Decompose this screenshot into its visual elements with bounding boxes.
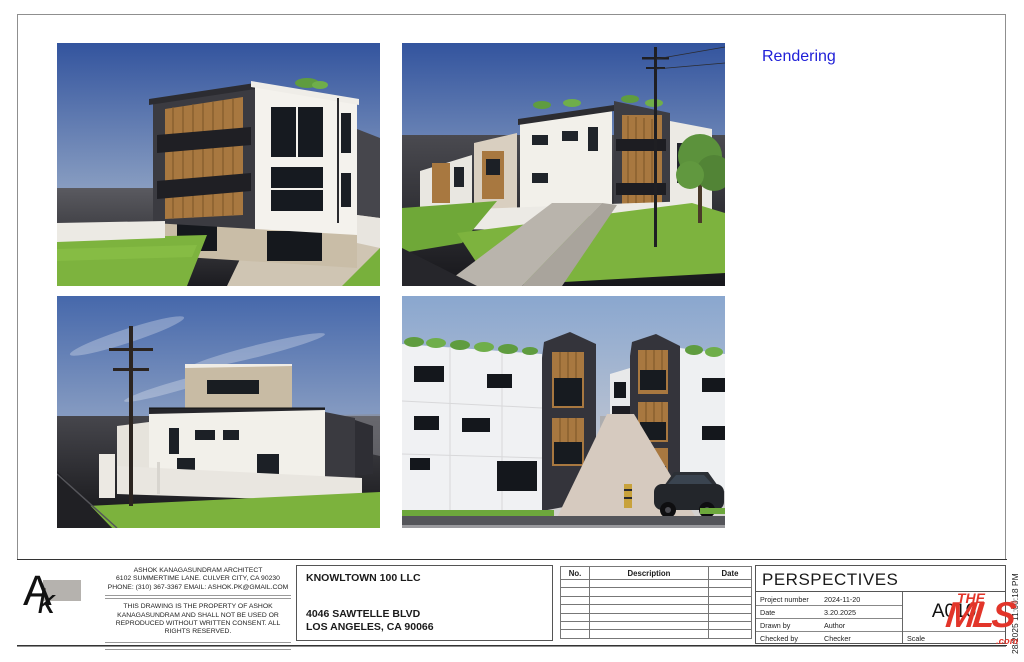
divider bbox=[105, 649, 291, 650]
field-checked-by: Checked by Checker bbox=[756, 631, 902, 644]
revision-col-description: Description bbox=[590, 567, 709, 580]
rendering-top-left bbox=[57, 43, 380, 286]
revision-row-empty bbox=[561, 630, 752, 638]
view-title-rendering: Rendering bbox=[762, 48, 836, 66]
architect-address: 6102 SUMMERTIME LANE. CULVER CITY, CA 90… bbox=[105, 575, 291, 583]
rendering-bottom-right bbox=[402, 296, 725, 528]
divider bbox=[105, 642, 291, 643]
mls-watermark: THE MLS ™ .com bbox=[946, 589, 1024, 661]
client-name: KNOWLTOWN 100 LLC bbox=[306, 572, 421, 584]
revision-col-date: Date bbox=[709, 567, 752, 580]
client-block: KNOWLTOWN 100 LLC 4046 SAWTELLE BLVD LOS… bbox=[296, 565, 553, 641]
divider bbox=[105, 595, 291, 596]
revision-row-empty bbox=[561, 588, 752, 596]
revision-table-body bbox=[561, 580, 752, 639]
field-project-number: Project number 2024-11-20 bbox=[756, 592, 902, 606]
revision-row-empty bbox=[561, 580, 752, 588]
architect-name: ASHOK KANAGASUNDRAM ARCHITECT bbox=[105, 567, 291, 575]
rendering-top-right bbox=[402, 43, 725, 286]
drawing-sheet: Rendering A k ASHOK KANAGASUNDRAM ARCHIT… bbox=[0, 0, 1024, 662]
revision-row-empty bbox=[561, 596, 752, 604]
divider bbox=[105, 598, 291, 599]
front-lawn bbox=[57, 235, 207, 286]
neighbor-building bbox=[357, 129, 380, 218]
revision-row-empty bbox=[561, 621, 752, 629]
field-date: Date 3.20.2025 bbox=[756, 605, 902, 619]
utility-pole bbox=[337, 98, 339, 223]
project-address: 4046 SAWTELLE BLVD LOS ANGELES, CA 90066 bbox=[306, 608, 434, 634]
rendering-top-left-svg bbox=[57, 43, 380, 286]
architect-contact: PHONE: (310) 367-3367 EMAIL: ASHOK.PK@GM… bbox=[105, 584, 291, 592]
architect-info: ASHOK KANAGASUNDRAM ARCHITECT 6102 SUMME… bbox=[105, 567, 291, 650]
rendering-bottom-left bbox=[57, 296, 380, 528]
rendering-top-right-svg bbox=[402, 43, 725, 286]
architect-block: A k ASHOK KANAGASUNDRAM ARCHITECT 6102 S… bbox=[17, 560, 295, 647]
mls-watermark-mls: MLS bbox=[944, 594, 1015, 636]
rendering-bottom-left-svg bbox=[57, 296, 380, 528]
revision-table: No. Description Date bbox=[560, 566, 752, 639]
hedge-strip bbox=[402, 510, 554, 516]
field-drawn-by: Drawn by Author bbox=[756, 618, 902, 632]
revision-col-no: No. bbox=[561, 567, 590, 580]
mls-watermark-com: .com bbox=[996, 636, 1018, 647]
revision-row-empty bbox=[561, 613, 752, 621]
rendering-bottom-right-svg bbox=[402, 296, 725, 528]
architect-logo: A k bbox=[23, 576, 101, 634]
copyright-notice: THIS DRAWING IS THE PROPERTY OF ASHOK KA… bbox=[105, 603, 291, 637]
left-building bbox=[402, 332, 596, 521]
title-block: A k ASHOK KANAGASUNDRAM ARCHITECT 6102 S… bbox=[17, 559, 1007, 646]
utility-box bbox=[624, 484, 632, 508]
mls-watermark-tm: ™ bbox=[1010, 601, 1017, 608]
revision-row-empty bbox=[561, 605, 752, 613]
